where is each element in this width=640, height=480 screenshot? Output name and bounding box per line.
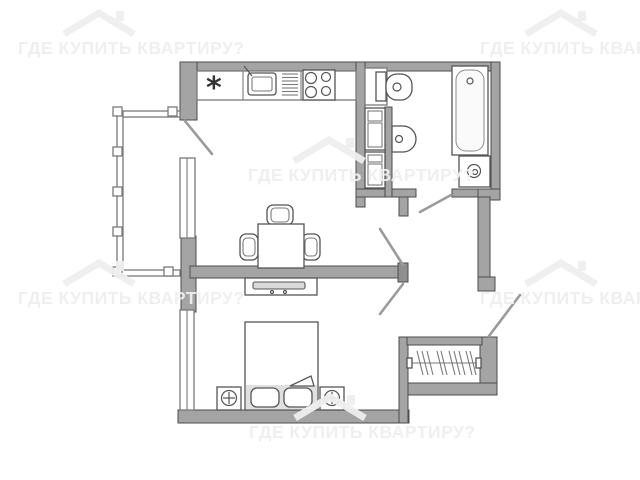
pillow (284, 388, 312, 407)
door-bedroom (380, 284, 403, 314)
balcony-post (168, 107, 177, 116)
fridge-symbol: * (206, 71, 222, 106)
door-entrance (489, 295, 520, 336)
floor-plan-stage: * ГДЕ КУПИТЬ КВАРТИРУ?ГДЕ КУПИТЬ КВАРТИР… (0, 0, 640, 480)
wall-living-right (356, 62, 365, 207)
bathtub-basin (456, 70, 484, 151)
balcony-post (164, 267, 173, 276)
wall-bottom-bedroom (178, 410, 409, 423)
dining-table (258, 224, 304, 268)
wall-bath-inner-stub (385, 107, 392, 197)
toilet-bowl (386, 74, 412, 100)
wall-wardrobe-top (407, 337, 482, 345)
wardrobe-rail-cap (476, 358, 481, 368)
balcony-post (113, 147, 122, 156)
pillow (251, 388, 279, 407)
wall-bedroom-right (399, 337, 408, 423)
balcony-post (113, 227, 122, 236)
door-living-room (380, 229, 403, 265)
wardrobe-rail-cap (407, 358, 412, 368)
balcony-post (113, 267, 122, 276)
wall-door-stub (399, 197, 408, 216)
door-balcony (185, 121, 212, 154)
balcony-post (113, 187, 122, 196)
balcony-post (113, 107, 122, 116)
wall-left-upper (180, 62, 197, 120)
wall-hall-right (478, 197, 490, 277)
toilet-tank (376, 72, 386, 101)
door-bathroom (420, 195, 451, 212)
wall-entrance-jamb (478, 277, 495, 291)
floorplan-svg: * (0, 0, 640, 480)
wall-wardrobe-bottom (399, 383, 497, 395)
tv (253, 282, 305, 289)
wall-right-top (491, 62, 500, 197)
washing-machine (459, 156, 490, 187)
